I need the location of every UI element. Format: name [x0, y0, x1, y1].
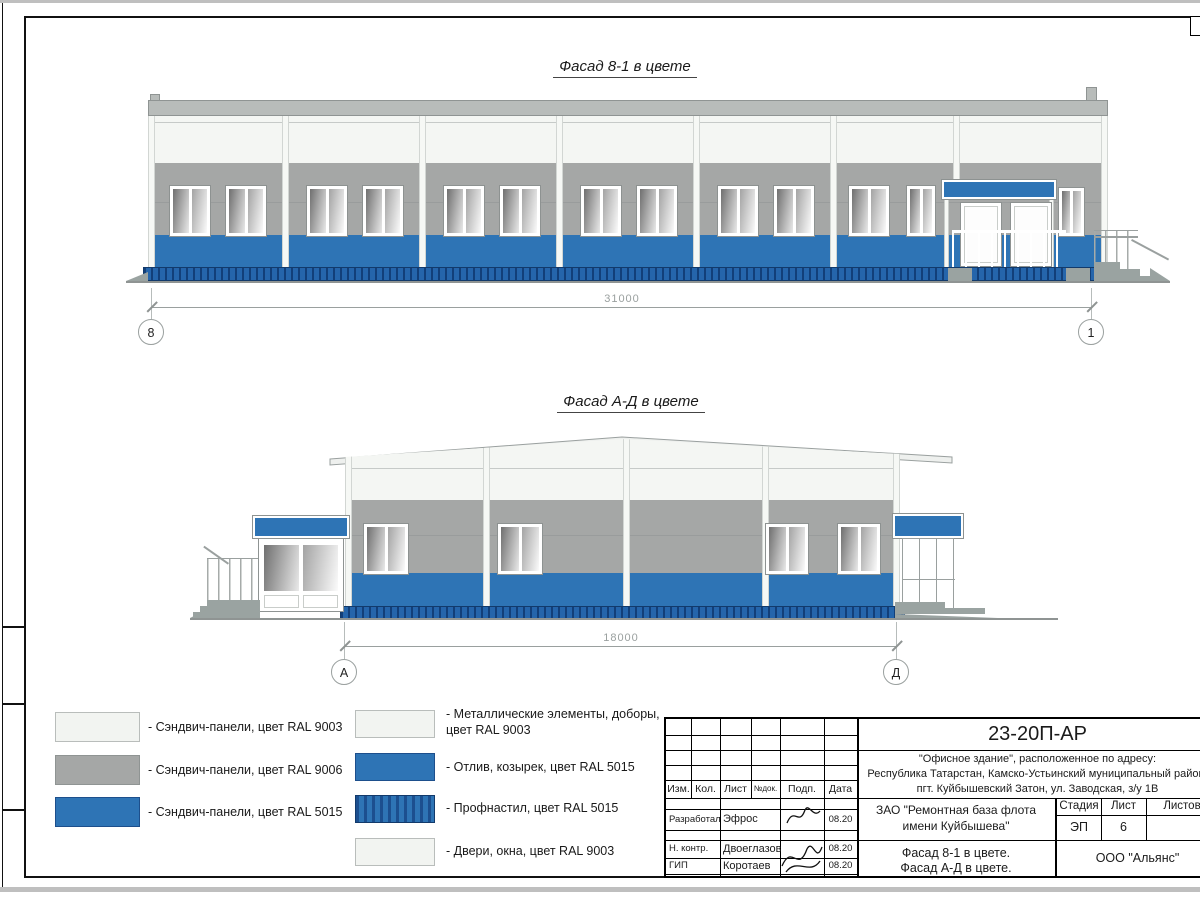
- tb-line: [666, 750, 1200, 751]
- ground-wedge: [1150, 268, 1170, 281]
- tb-date: 08.20: [824, 858, 857, 874]
- porch-canopy: [893, 514, 963, 538]
- window: [306, 185, 348, 237]
- window: [717, 185, 759, 237]
- legend-swatch-ral9003: [55, 712, 140, 742]
- porch-rail: [903, 579, 955, 580]
- facade2-drawing: [205, 430, 1055, 622]
- pilaster: [953, 116, 960, 180]
- dimension-line: [151, 307, 1092, 308]
- corner-pilaster: [148, 116, 155, 267]
- signature: [784, 804, 822, 829]
- tb-header-podp: Подп.: [780, 780, 824, 798]
- facade2-title: Фасад А-Д в цвете: [511, 393, 751, 410]
- legend-swatch-metal: [355, 710, 435, 738]
- dimension-value: 18000: [571, 632, 671, 644]
- vestibule-panel: [264, 595, 299, 608]
- frame-top: [24, 16, 1200, 18]
- legend-swatch-ral9006: [55, 755, 140, 785]
- margin-divider: [2, 809, 25, 811]
- tb-role: Н. контр.: [669, 840, 720, 858]
- dimension-line: [344, 646, 897, 647]
- tb-line: [666, 874, 857, 875]
- window: [363, 523, 409, 575]
- ground-line: [190, 618, 1058, 620]
- window: [848, 185, 890, 237]
- stair-railing: [207, 558, 258, 605]
- drawing-sheet: { "facade1": { "title": "Фасад 8-1 в цве…: [0, 0, 1200, 900]
- pilaster: [623, 439, 630, 606]
- tb-line: [666, 765, 857, 766]
- tb-name: Эфрос: [723, 809, 780, 830]
- extension-line: [1091, 288, 1092, 319]
- window: [362, 185, 404, 237]
- extension-line: [344, 622, 345, 659]
- extension-line: [151, 288, 152, 319]
- tb-address-line3: пгт. Куйбышевский Затон, ул. Заводская, …: [857, 782, 1200, 797]
- tb-client-line1: ЗАО "Ремонтная база флота: [857, 802, 1055, 818]
- porch-glazing: [902, 538, 954, 612]
- title-block: Изм. Кол. Лист №док. Подп. Дата Разработ…: [664, 717, 1200, 878]
- tb-role: ГИП: [669, 858, 720, 874]
- sheet-bottom-edge: [0, 887, 1200, 892]
- tb-doc-title: Фасад 8-1 в цвете. Фасад А-Д в цвете.: [857, 846, 1055, 876]
- window: [636, 185, 678, 237]
- tb-client: ЗАО "Ремонтная база флота имени Куйбышев…: [857, 802, 1055, 834]
- ground-wedge: [126, 272, 148, 281]
- top-right-code-box: [1190, 16, 1200, 36]
- pilaster: [483, 439, 490, 606]
- canopy-post: [945, 199, 948, 267]
- window: [906, 185, 936, 237]
- tb-role: Разработал: [669, 809, 720, 830]
- window: [765, 523, 809, 575]
- tb-name: Двоеглазов: [723, 840, 780, 858]
- window: [443, 185, 485, 237]
- tb-sheet-label: Лист: [1101, 798, 1146, 815]
- tb-header-ndok: №док.: [751, 780, 780, 798]
- facade1-wall: [148, 116, 1108, 267]
- tb-address-line1: "Офисное здание", расположенное по адрес…: [857, 752, 1200, 767]
- tb-doc-code: 23-20П-АР: [857, 719, 1200, 750]
- facade1-title: Фасад 8-1 в цвете: [505, 58, 745, 75]
- window: [773, 185, 815, 237]
- tb-sheet-value: 6: [1101, 815, 1146, 840]
- legend-swatch-ral5015: [55, 797, 140, 827]
- tb-header-izm: Изм.: [666, 780, 691, 798]
- window: [837, 523, 881, 575]
- stair-step: [895, 608, 985, 614]
- legend-label: - Металлические элементы, доборы, цвет R…: [446, 706, 661, 738]
- signature: [778, 838, 824, 876]
- pilaster: [419, 116, 426, 267]
- tb-stage-label: Стадия: [1057, 798, 1101, 815]
- legend-label: - Сэндвич-панели, цвет RAL 5015: [148, 797, 378, 827]
- tb-name: Коротаев: [723, 858, 780, 874]
- dimension-value: 31000: [572, 293, 672, 305]
- sheet-top-edge: [0, 0, 1200, 3]
- margin-divider: [2, 703, 25, 705]
- pilaster: [282, 116, 289, 267]
- legend-swatch-profnastil: [355, 795, 435, 823]
- roof-fascia: [148, 100, 1108, 116]
- pilaster: [693, 116, 700, 267]
- wall-band-white: [148, 116, 1108, 163]
- tb-line: [666, 830, 857, 831]
- parapet-tab: [1086, 87, 1097, 101]
- legend-label: - Сэндвич-панели, цвет RAL 9003: [148, 712, 378, 742]
- window: [580, 185, 622, 237]
- axis-marker-a: А: [331, 659, 357, 685]
- window: [497, 523, 543, 575]
- legend-swatch-otliv: [355, 753, 435, 781]
- tb-header-list: Лист: [720, 780, 751, 798]
- porch-step: [948, 268, 972, 281]
- pilaster: [830, 116, 837, 267]
- axis-marker-1: 1: [1078, 319, 1104, 345]
- tb-header-kol: Кол.: [691, 780, 720, 798]
- tb-date: 08.20: [824, 809, 857, 830]
- vestibule-panel: [303, 595, 338, 608]
- porch-railing: [952, 230, 1066, 267]
- axis-marker-d: Д: [883, 659, 909, 685]
- tb-address-line2: Республика Татарстан, Камско-Устьинский …: [857, 767, 1200, 782]
- legend-label: - Двери, окна, цвет RAL 9003: [446, 844, 666, 858]
- tb-line: [666, 735, 857, 736]
- tb-doc-title-line1: Фасад 8-1 в цвете.: [857, 846, 1055, 861]
- tb-client-line2: имени Куйбышева": [857, 818, 1055, 834]
- facade1-drawing: [148, 95, 1108, 287]
- ground-line: [126, 281, 1170, 283]
- outer-border-left: [2, 3, 3, 887]
- tb-sheets-label: Листов: [1146, 798, 1200, 815]
- legend-label: - Сэндвич-панели, цвет RAL 9006: [148, 755, 378, 785]
- legend-swatch-doors: [355, 838, 435, 866]
- window: [499, 185, 541, 237]
- frame-left: [24, 16, 26, 877]
- margin-divider: [2, 626, 25, 628]
- porch-step: [1066, 268, 1090, 281]
- tb-company: ООО "Альянс": [1057, 840, 1200, 876]
- tb-date: 08.20: [824, 840, 857, 858]
- entrance-canopy: [942, 180, 1056, 199]
- pilaster: [556, 116, 563, 267]
- panel-seam: [148, 122, 1108, 123]
- tb-header-data: Дата: [824, 780, 857, 798]
- window: [169, 185, 211, 237]
- legend-label: - Профнастил, цвет RAL 5015: [446, 801, 666, 815]
- porch-canopy: [253, 516, 349, 538]
- axis-marker-8: 8: [138, 319, 164, 345]
- facade2-wall: [345, 439, 900, 615]
- tb-doc-title-line2: Фасад А-Д в цвете.: [857, 861, 1055, 876]
- vestibule: [258, 538, 344, 612]
- stair-rail-bar: [1094, 236, 1138, 238]
- window: [225, 185, 267, 237]
- stair-step: [1094, 262, 1120, 281]
- legend-label: - Отлив, козырек, цвет RAL 5015: [446, 760, 666, 774]
- vestibule-glazing: [264, 545, 299, 591]
- tb-stage-value: ЭП: [1057, 815, 1101, 840]
- stair-step: [1120, 269, 1140, 281]
- extension-line: [896, 622, 897, 659]
- tb-address: "Офисное здание", расположенное по адрес…: [857, 752, 1200, 797]
- vestibule-door-glazing: [303, 545, 338, 591]
